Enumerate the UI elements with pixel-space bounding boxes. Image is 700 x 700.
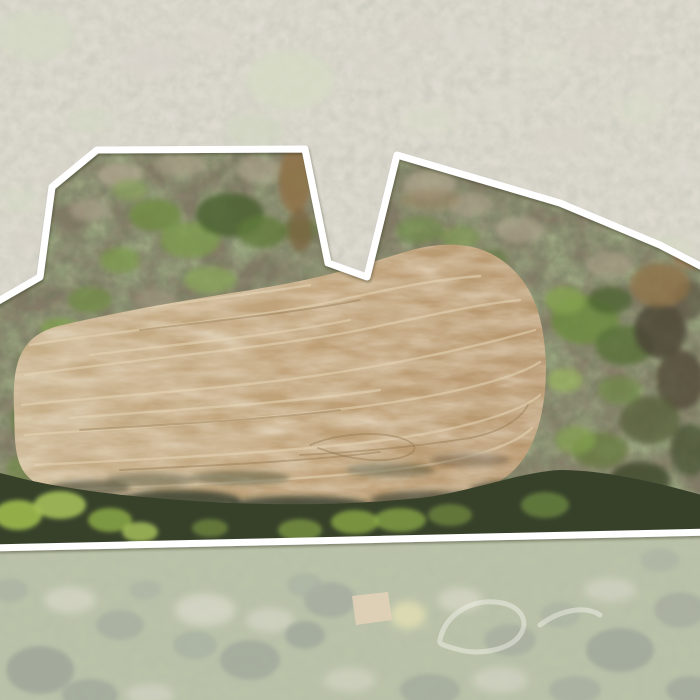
aerial-property-photo <box>0 0 700 700</box>
aerial-photo-canvas <box>0 0 700 700</box>
